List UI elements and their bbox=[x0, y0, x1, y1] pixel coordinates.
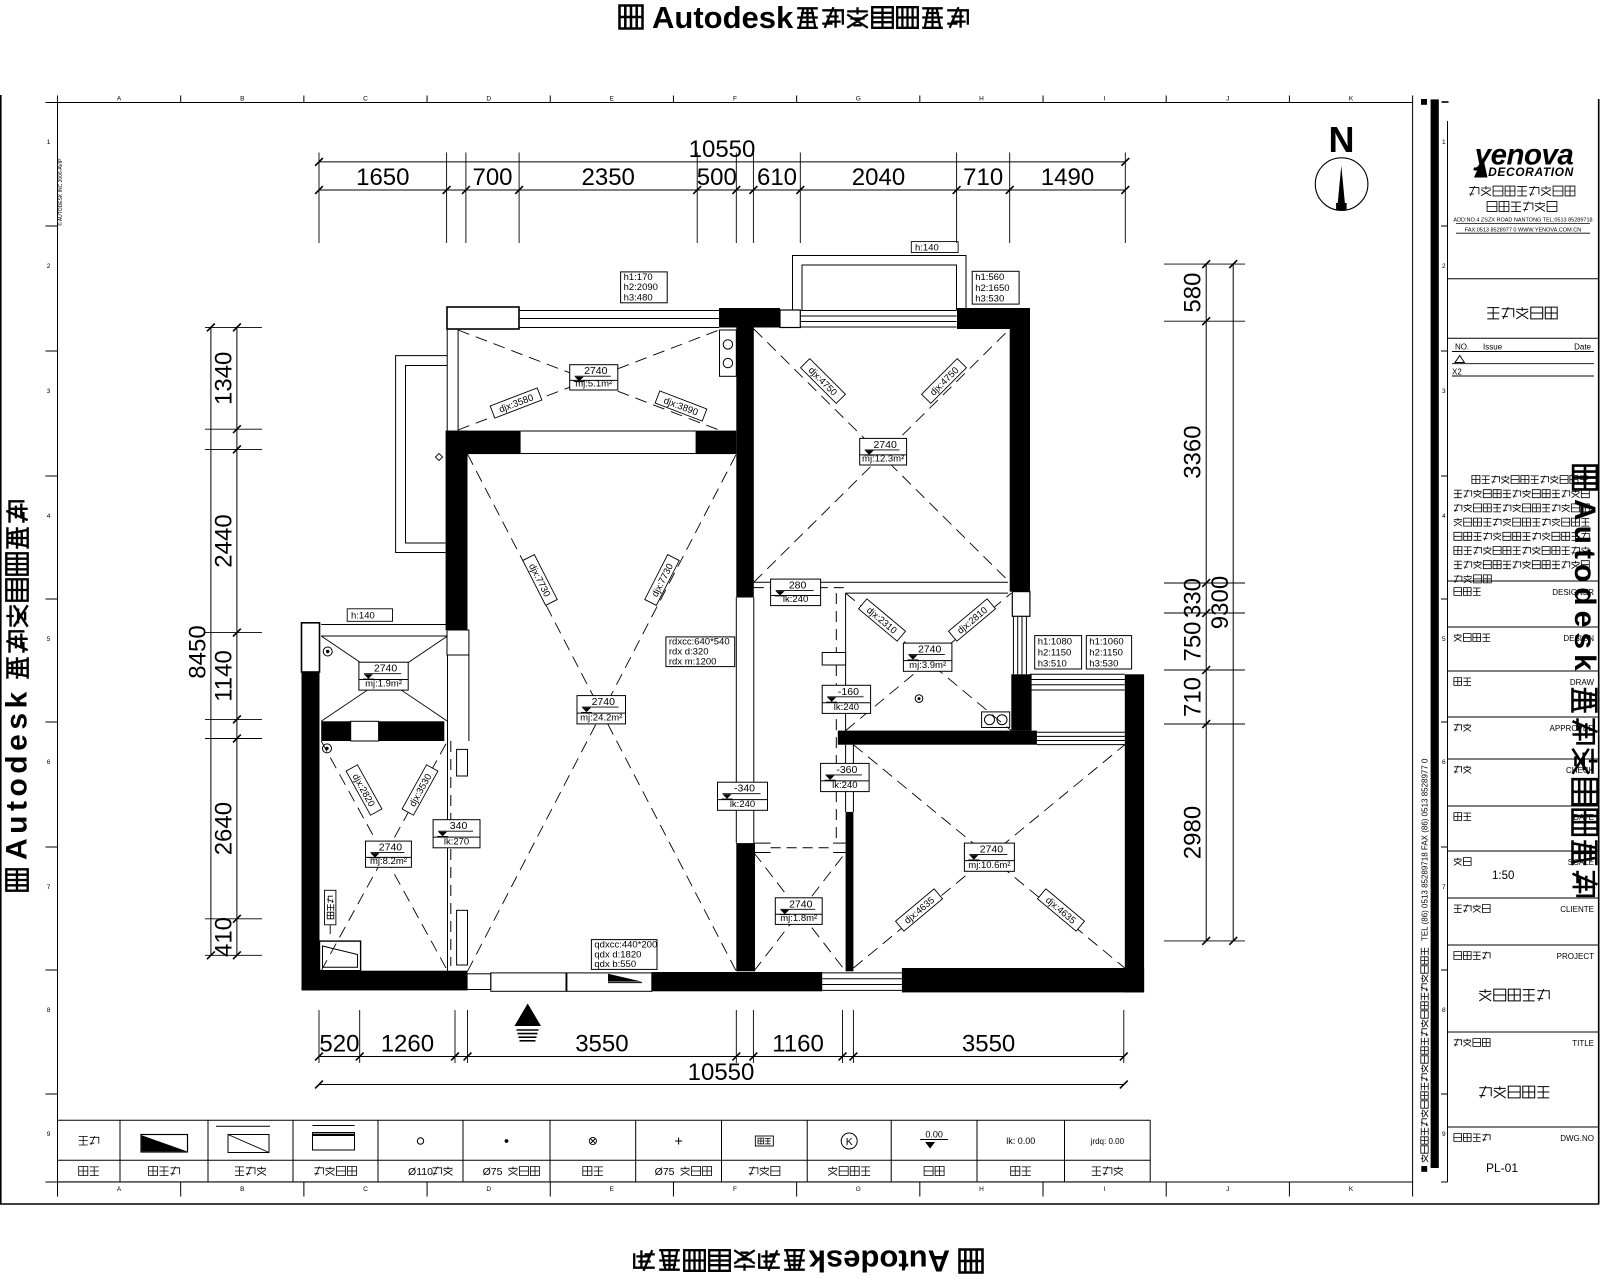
svg-text:qdx b:550: qdx b:550 bbox=[594, 959, 636, 970]
svg-text:I: I bbox=[1104, 1186, 1106, 1193]
svg-text:G: G bbox=[856, 96, 861, 103]
svg-text:lk:240: lk:240 bbox=[832, 780, 857, 791]
svg-text:DATE: DATE bbox=[1573, 813, 1594, 822]
svg-text:2740: 2740 bbox=[873, 439, 897, 451]
svg-text:7: 7 bbox=[47, 884, 51, 891]
svg-text:jrdq: 0.00: jrdq: 0.00 bbox=[1090, 1137, 1125, 1146]
svg-text:4: 4 bbox=[47, 513, 51, 520]
svg-text:710: 710 bbox=[1180, 677, 1207, 717]
svg-text:rdx m:1200: rdx m:1200 bbox=[669, 656, 717, 667]
svg-text:ADD:NO.4 ZSZX ROAD NANTONG TEL: ADD:NO.4 ZSZX ROAD NANTONG TEL:0513 8528… bbox=[1453, 218, 1592, 224]
svg-text:E: E bbox=[610, 96, 615, 103]
svg-text:8450: 8450 bbox=[185, 625, 212, 678]
svg-text:3550: 3550 bbox=[962, 1031, 1015, 1058]
svg-text:Autodesk: Autodesk bbox=[1568, 499, 1600, 676]
svg-text:7: 7 bbox=[1442, 884, 1446, 891]
svg-text:h:140: h:140 bbox=[915, 242, 939, 253]
svg-text:10550: 10550 bbox=[688, 1059, 755, 1086]
svg-text:Ø110: Ø110 bbox=[408, 1166, 433, 1178]
svg-text:CHECK: CHECK bbox=[1566, 766, 1595, 775]
svg-text:DECORATION: DECORATION bbox=[1488, 165, 1574, 179]
svg-text:500: 500 bbox=[697, 164, 737, 191]
svg-text:2740: 2740 bbox=[374, 663, 398, 675]
svg-text:A: A bbox=[117, 96, 122, 103]
svg-text:C: C bbox=[363, 96, 368, 103]
svg-text:lk:240: lk:240 bbox=[783, 594, 808, 605]
svg-text:CLIENTE: CLIENTE bbox=[1560, 905, 1594, 914]
svg-text:9: 9 bbox=[1442, 1131, 1446, 1138]
svg-text:8: 8 bbox=[1442, 1007, 1446, 1014]
svg-text:h2:1150: h2:1150 bbox=[1038, 647, 1072, 658]
svg-text:FAX:0513 8528977 0 WWW.YENOVA.: FAX:0513 8528977 0 WWW.YENOVA.COM.CN bbox=[1465, 228, 1581, 234]
svg-text:1490: 1490 bbox=[1041, 164, 1094, 191]
svg-text:2040: 2040 bbox=[852, 164, 905, 191]
svg-text:G: G bbox=[856, 1186, 861, 1193]
svg-text:F: F bbox=[733, 96, 737, 103]
svg-text:mj:10.6m²: mj:10.6m² bbox=[968, 860, 1010, 871]
svg-text:410: 410 bbox=[211, 917, 238, 957]
svg-text:J: J bbox=[1226, 96, 1229, 103]
svg-text:750: 750 bbox=[1180, 621, 1207, 661]
svg-text:N: N bbox=[1329, 119, 1355, 160]
svg-text:2440: 2440 bbox=[211, 514, 238, 567]
svg-text:1:50: 1:50 bbox=[1492, 870, 1514, 882]
svg-text:lk:270: lk:270 bbox=[444, 836, 469, 847]
svg-text:D: D bbox=[486, 1186, 491, 1193]
svg-text:520: 520 bbox=[319, 1031, 359, 1058]
svg-text:2740: 2740 bbox=[379, 842, 403, 854]
svg-text:DRAW: DRAW bbox=[1570, 678, 1595, 687]
svg-text:h3:510: h3:510 bbox=[1038, 659, 1067, 670]
svg-text:H: H bbox=[979, 96, 984, 103]
svg-text:2980: 2980 bbox=[1180, 806, 1207, 859]
svg-text:3360: 3360 bbox=[1180, 425, 1207, 478]
svg-text:8: 8 bbox=[47, 1007, 51, 1014]
svg-text:700: 700 bbox=[472, 164, 512, 191]
svg-text:h3:530: h3:530 bbox=[1089, 659, 1118, 670]
svg-text:TITLE: TITLE bbox=[1572, 1039, 1594, 1048]
svg-text:C: C bbox=[363, 1186, 368, 1193]
svg-text:-340: -340 bbox=[734, 783, 755, 795]
svg-text:3: 3 bbox=[47, 388, 51, 395]
svg-text:1650: 1650 bbox=[356, 164, 409, 191]
svg-text:1340: 1340 bbox=[211, 352, 238, 405]
svg-text:2: 2 bbox=[47, 263, 51, 270]
svg-text:lk:240: lk:240 bbox=[730, 799, 755, 810]
svg-text:0.00: 0.00 bbox=[925, 1130, 943, 1140]
svg-text:1160: 1160 bbox=[772, 1031, 824, 1058]
svg-text:h1:1060: h1:1060 bbox=[1089, 636, 1123, 647]
svg-text:mj:1.8m²: mj:1.8m² bbox=[780, 913, 817, 924]
svg-text:B: B bbox=[240, 96, 244, 103]
svg-text:Autodesk: Autodesk bbox=[1, 687, 34, 860]
svg-text:5: 5 bbox=[1442, 636, 1446, 643]
svg-text:Autodesk: Autodesk bbox=[652, 0, 794, 35]
svg-text:9300: 9300 bbox=[1207, 576, 1234, 629]
svg-text:mj:24.2m²: mj:24.2m² bbox=[580, 712, 622, 723]
svg-text:3: 3 bbox=[1442, 388, 1446, 395]
svg-text:DWG.NO: DWG.NO bbox=[1560, 1134, 1594, 1143]
svg-text:h2:1150: h2:1150 bbox=[1089, 647, 1123, 658]
svg-text:1: 1 bbox=[47, 139, 51, 146]
svg-text:2640: 2640 bbox=[211, 802, 238, 855]
svg-text:h1:1080: h1:1080 bbox=[1038, 636, 1072, 647]
svg-text:B: B bbox=[240, 1186, 244, 1193]
svg-text:580: 580 bbox=[1180, 273, 1207, 313]
svg-text:610: 610 bbox=[757, 164, 797, 191]
svg-text:h:140: h:140 bbox=[351, 611, 375, 622]
svg-text:2740: 2740 bbox=[592, 696, 616, 708]
svg-text:3550: 3550 bbox=[575, 1031, 628, 1058]
svg-text:mj:12.3m²: mj:12.3m² bbox=[862, 454, 904, 465]
svg-text:E: E bbox=[610, 1186, 615, 1193]
svg-text:PROJECT: PROJECT bbox=[1557, 952, 1594, 961]
svg-text:Date: Date bbox=[1574, 343, 1591, 352]
svg-text:5: 5 bbox=[47, 636, 51, 643]
svg-text:Autodesk: Autodesk bbox=[808, 1244, 950, 1279]
svg-text:J: J bbox=[1226, 1186, 1229, 1193]
svg-text:mj:1.9m²: mj:1.9m² bbox=[365, 679, 402, 690]
svg-text:4: 4 bbox=[1442, 513, 1446, 520]
svg-text:10550: 10550 bbox=[689, 136, 756, 163]
svg-text:lk: 0.00: lk: 0.00 bbox=[1006, 1136, 1035, 1146]
svg-text:2740: 2740 bbox=[980, 844, 1004, 856]
svg-text:h1:560: h1:560 bbox=[975, 272, 1004, 283]
svg-text:mj:3.9m²: mj:3.9m² bbox=[909, 660, 946, 671]
svg-text:NO.: NO. bbox=[1455, 343, 1469, 352]
svg-text:K: K bbox=[846, 1136, 853, 1148]
svg-text:K: K bbox=[1349, 1186, 1354, 1193]
svg-text:lk:240: lk:240 bbox=[834, 702, 859, 713]
svg-text:1260: 1260 bbox=[381, 1031, 434, 1058]
svg-text:280: 280 bbox=[789, 580, 807, 592]
svg-text:© AUTODESK INC 2006-AVIP: © AUTODESK INC 2006-AVIP bbox=[57, 158, 64, 226]
svg-text:Ø75: Ø75 bbox=[483, 1166, 503, 1178]
svg-text:Issue: Issue bbox=[1483, 343, 1503, 352]
svg-text:PL-01: PL-01 bbox=[1486, 1161, 1518, 1175]
svg-text:mj:8.2m²: mj:8.2m² bbox=[370, 856, 407, 867]
svg-text:h2:1650: h2:1650 bbox=[975, 283, 1009, 294]
svg-text:h3:530: h3:530 bbox=[975, 294, 1004, 305]
svg-text:I: I bbox=[1104, 96, 1106, 103]
svg-text:2740: 2740 bbox=[789, 898, 813, 910]
svg-text:D: D bbox=[486, 96, 491, 103]
svg-text:1: 1 bbox=[1442, 139, 1446, 146]
svg-text:-160: -160 bbox=[838, 686, 859, 698]
svg-text:F: F bbox=[733, 1186, 737, 1193]
svg-text:2740: 2740 bbox=[584, 365, 608, 377]
svg-text:X2: X2 bbox=[1452, 368, 1462, 377]
svg-text:9: 9 bbox=[47, 1131, 51, 1138]
svg-text:2350: 2350 bbox=[582, 164, 635, 191]
svg-text:A: A bbox=[117, 1186, 122, 1193]
svg-text:2740: 2740 bbox=[918, 644, 942, 656]
svg-text:-360: -360 bbox=[836, 764, 857, 776]
svg-text:1140: 1140 bbox=[211, 650, 238, 702]
svg-text:6: 6 bbox=[47, 759, 51, 766]
svg-text:340: 340 bbox=[450, 820, 468, 832]
svg-text:Ø75: Ø75 bbox=[655, 1166, 675, 1178]
svg-text:710: 710 bbox=[963, 164, 1003, 191]
svg-text:K: K bbox=[1349, 96, 1354, 103]
svg-text:TEL (86) 0513 85289718 FAX (8: TEL (86) 0513 85289718 FAX (86) 0513 852… bbox=[1421, 758, 1430, 941]
svg-text:2: 2 bbox=[1442, 263, 1446, 270]
svg-text:H: H bbox=[979, 1186, 984, 1193]
svg-text:6: 6 bbox=[1442, 759, 1446, 766]
svg-text:h3:480: h3:480 bbox=[624, 293, 653, 304]
svg-text:330: 330 bbox=[1180, 578, 1207, 618]
svg-text:mj:5.1m²: mj:5.1m² bbox=[575, 379, 612, 390]
